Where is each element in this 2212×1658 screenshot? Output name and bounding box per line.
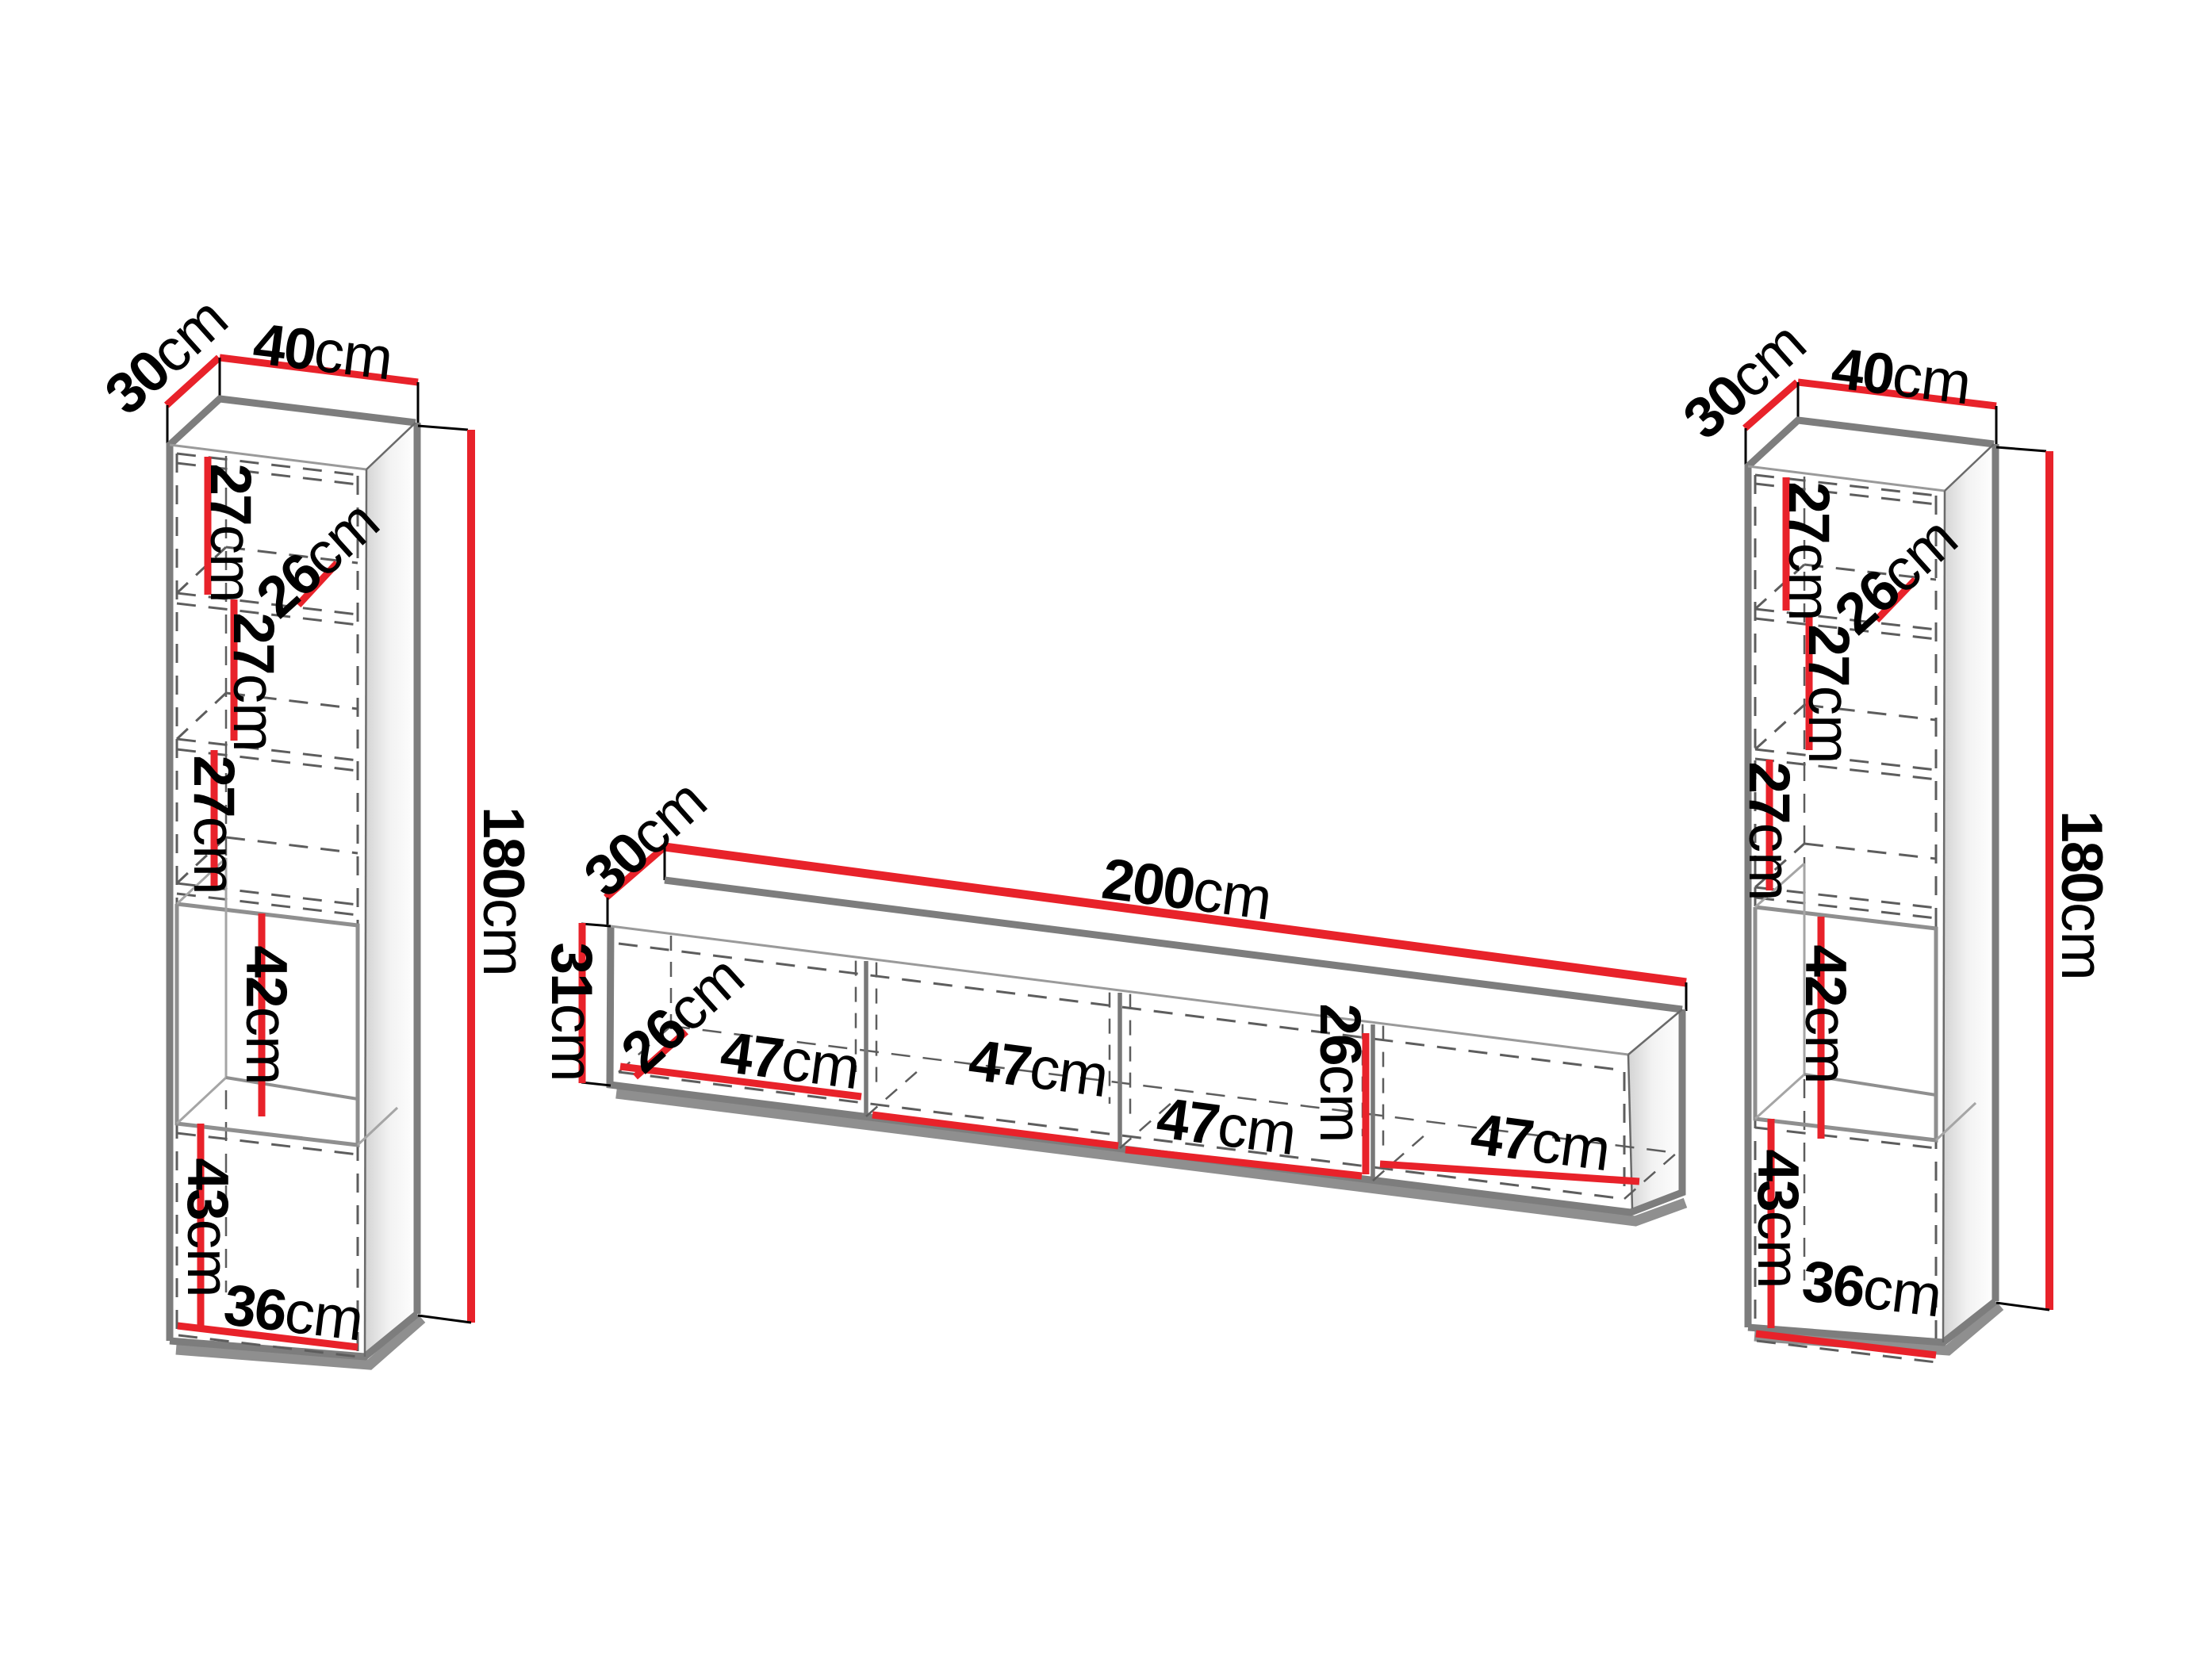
svg-text:43cm: 43cm bbox=[1746, 1149, 1812, 1288]
svg-text:42cm: 42cm bbox=[1793, 944, 1860, 1083]
svg-text:27cm: 27cm bbox=[221, 612, 288, 751]
svg-text:26cm: 26cm bbox=[1308, 1003, 1374, 1142]
svg-text:27cm: 27cm bbox=[1737, 761, 1804, 900]
svg-text:180cm: 180cm bbox=[471, 806, 538, 976]
svg-text:27cm: 27cm bbox=[182, 755, 248, 894]
svg-text:180cm: 180cm bbox=[2049, 810, 2116, 980]
svg-text:27cm: 27cm bbox=[1796, 624, 1863, 763]
svg-text:42cm: 42cm bbox=[234, 945, 301, 1084]
svg-text:31cm: 31cm bbox=[539, 942, 606, 1081]
